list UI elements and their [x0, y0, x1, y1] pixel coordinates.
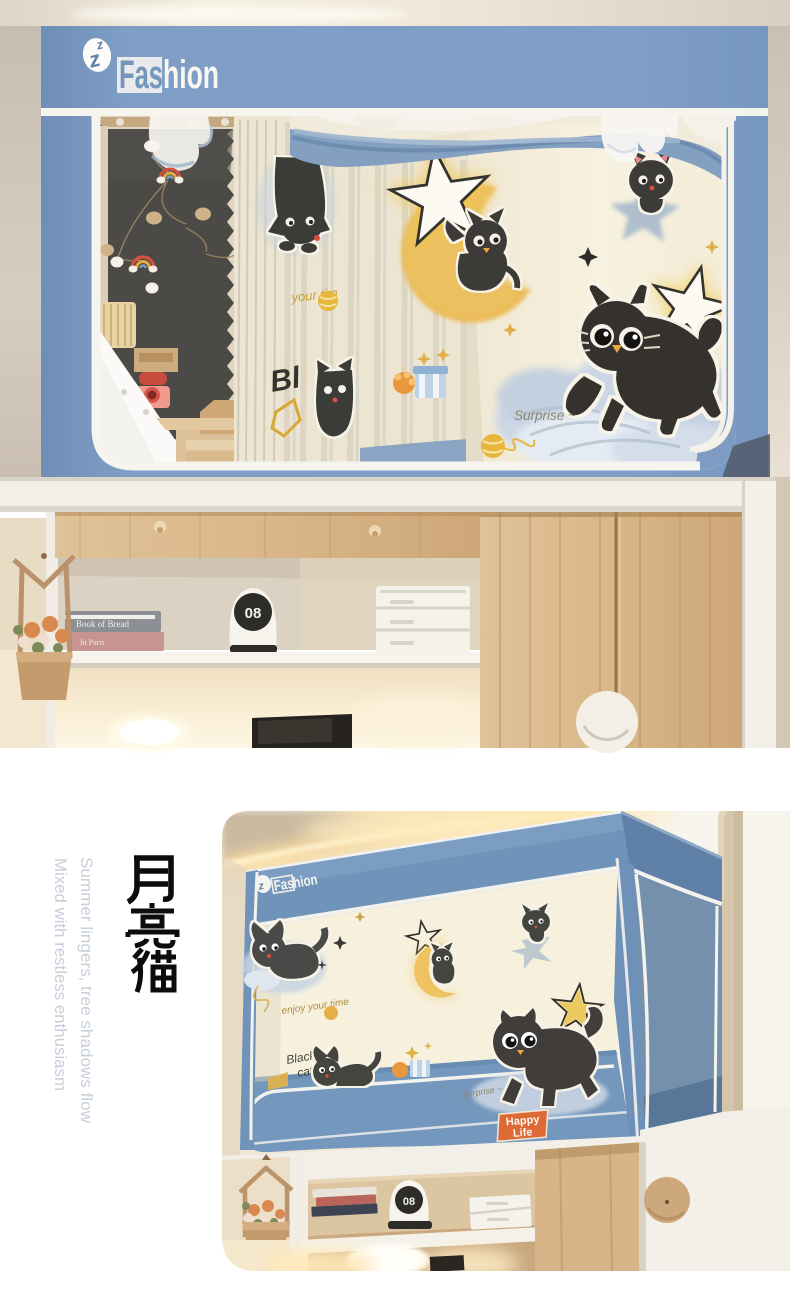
svg-text:In Paris: In Paris: [80, 638, 105, 647]
svg-text:Surprise ~: Surprise ~: [514, 408, 576, 423]
svg-text:08: 08: [245, 605, 262, 622]
svg-text:Mixed with restless enthusiasm: Mixed with restless enthusiasm: [51, 858, 70, 1091]
svg-text:Summer lingers, tree shadows: Summer lingers, tree shadows flow: [77, 857, 96, 1124]
svg-text:cat: cat: [296, 1063, 315, 1080]
svg-text:Fas: Fas: [119, 53, 163, 97]
svg-text:Life: Life: [512, 1126, 533, 1140]
svg-text:hion: hion: [163, 53, 219, 97]
svg-text:Book of Bread: Book of Bread: [76, 619, 129, 629]
svg-text:08: 08: [403, 1196, 415, 1208]
